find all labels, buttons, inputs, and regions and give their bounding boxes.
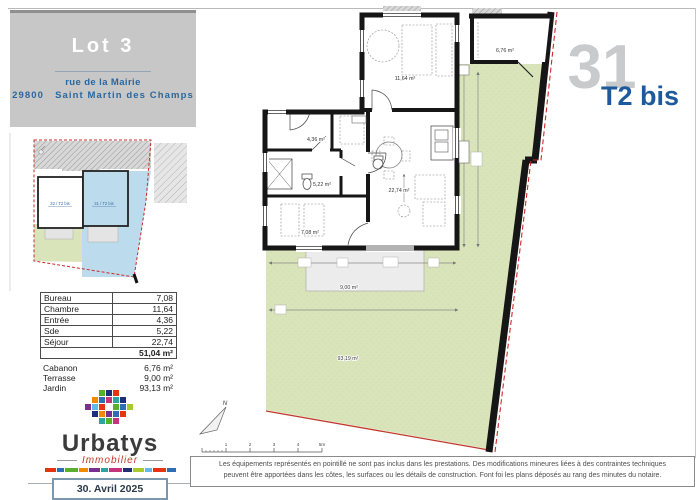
header-divider — [55, 71, 151, 72]
annex-areas-table: Cabanon6,76 m² Terrasse9,00 m² Jardin93,… — [40, 363, 176, 393]
annex-row: Cabanon6,76 m² — [40, 363, 176, 373]
room-label: Chambre — [41, 304, 113, 315]
legal-disclaimer: Les équipements représentés en pointillé… — [190, 456, 695, 487]
site-terrace-32 — [45, 228, 73, 239]
area-total-row: 51,04 m² — [41, 348, 177, 359]
svg-text:4: 4 — [297, 442, 300, 447]
north-label: N — [223, 400, 228, 407]
annex-label: Cabanon — [40, 363, 112, 373]
agency-name: Urbatys — [30, 431, 190, 456]
disclaimer-line-1: Les équipements représentés en pointillé… — [191, 460, 694, 471]
room-label: Bureau — [41, 293, 113, 304]
room-value: 11,64 — [113, 304, 177, 315]
annex-label: Terrasse — [40, 373, 112, 383]
agency-subtitle-row: Immobilier — [30, 455, 190, 466]
site-label-unit-31: 31 / T2 bis — [94, 201, 113, 206]
lot-title: Lot 3 — [10, 35, 196, 58]
address-street: rue de la Mairie — [10, 77, 196, 88]
date-box: 30. Avril 2025 — [52, 478, 168, 500]
subtitle-dash-left — [57, 460, 77, 461]
logo-color-strip — [30, 468, 190, 472]
site-wall-tip — [134, 274, 137, 283]
agency-logo-block: Urbatys Immobilier 30. Avril 2025 — [30, 390, 190, 500]
annex-value: 9,00 m² — [112, 373, 176, 383]
room-value: 7,08 — [113, 293, 177, 304]
agency-subtitle: Immobilier — [82, 455, 138, 466]
cabanon-doorstep — [459, 65, 469, 75]
area-row: Sde5,22 — [41, 326, 177, 337]
site-label-unit-32: 32 / T2 bis — [50, 201, 69, 206]
label-jardin: 93,19 m² — [338, 356, 359, 362]
urbatys-mosaic-logo-icon — [85, 390, 135, 426]
kitchen-sink-2 — [435, 142, 448, 152]
area-row: Séjour22,74 — [41, 337, 177, 348]
site-manhole-icon — [39, 150, 43, 154]
annex-row: Terrasse9,00 m² — [40, 373, 176, 383]
room-value: 22,74 — [113, 337, 177, 348]
label-chambre: 11,64 m² — [395, 76, 416, 82]
floor-plan: 11,64 m² 6,76 m² 4,36 m² 5,22 m² 22,74 m… — [190, 6, 700, 458]
site-terrace-31 — [88, 226, 118, 242]
annex-value: 6,76 m² — [112, 363, 176, 373]
label-terrasse: 9,00 m² — [340, 285, 358, 291]
area-row: Bureau7,08 — [41, 293, 177, 304]
label-sejour: 22,74 m² — [389, 188, 410, 194]
room-label: Entrée — [41, 315, 113, 326]
svg-text:1: 1 — [225, 442, 228, 447]
scale-labels: 1 2 3 4 5m — [225, 442, 326, 447]
site-location-plan: 32 / T2 bis 31 / T2 bis — [8, 132, 190, 292]
washbasin — [373, 159, 383, 169]
address-city: Saint Martin des Champs — [55, 90, 194, 101]
plan-date: 30. Avril 2025 — [77, 483, 143, 495]
address-postal-code: 29800 — [12, 90, 44, 101]
label-bureau: 7,08 m² — [301, 230, 319, 236]
svg-text:5m: 5m — [319, 442, 326, 447]
label-sde: 5,22 m² — [313, 182, 331, 188]
site-neighbor-hatch — [154, 143, 187, 203]
room-areas-table: Bureau7,08 Chambre11,64 Entrée4,36 Sde5,… — [40, 292, 177, 359]
address-city-line: 29800 Saint Martin des Champs — [10, 90, 196, 101]
north-compass: N — [200, 400, 228, 434]
unit-type: T2 bis — [601, 81, 679, 111]
areas-panel: Bureau7,08 Chambre11,64 Entrée4,36 Sde5,… — [40, 292, 176, 393]
exterior-unit — [459, 141, 469, 163]
subtitle-dash-right — [143, 460, 163, 461]
total-area-value: 51,04 m² — [41, 348, 177, 359]
area-row: Chambre11,64 — [41, 304, 177, 315]
kitchen-sink-1 — [435, 130, 448, 140]
room-value: 5,22 — [113, 326, 177, 337]
svg-text:2: 2 — [249, 442, 252, 447]
area-row: Entrée4,36 — [41, 315, 177, 326]
disclaimer-line-2: peuvent être apportées dans les côtes, l… — [191, 471, 694, 482]
label-entree: 4,36 m² — [307, 137, 325, 143]
site-unit-31 — [83, 171, 128, 226]
room-value: 4,36 — [113, 315, 177, 326]
terrace-area — [306, 250, 424, 291]
scale-bar — [202, 448, 322, 452]
site-stair-hatch — [62, 163, 100, 171]
room-label: Séjour — [41, 337, 113, 348]
room-label: Sde — [41, 326, 113, 337]
label-cabanon: 6,76 m² — [496, 48, 514, 54]
toilet-bowl — [303, 179, 311, 190]
lot-header: Lot 3 rue de la Mairie 29800 Saint Marti… — [10, 10, 196, 127]
svg-text:3: 3 — [273, 442, 276, 447]
